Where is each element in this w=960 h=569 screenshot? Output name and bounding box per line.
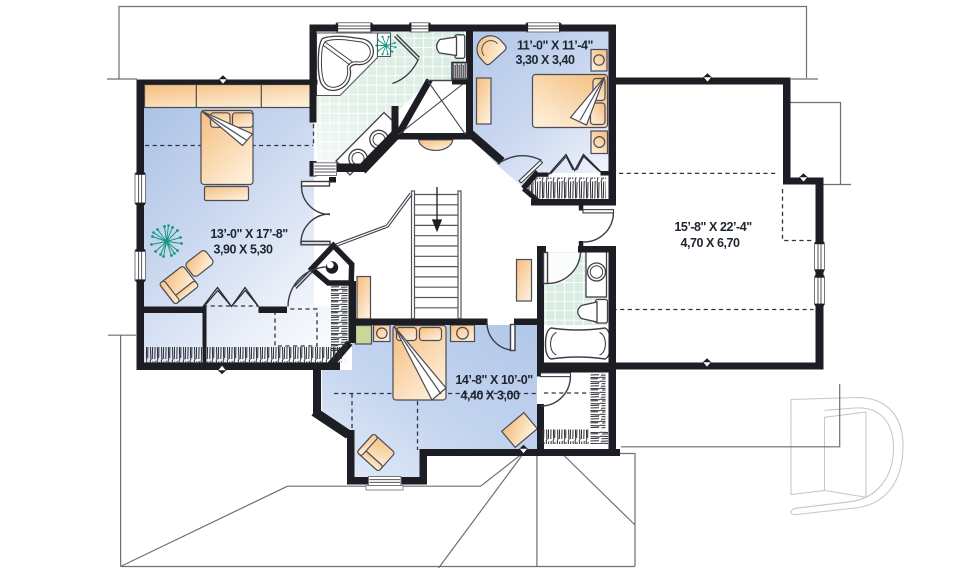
svg-text:3,30 X 3,40: 3,30 X 3,40	[516, 53, 575, 67]
svg-text:13’-0" X 17’-8": 13’-0" X 17’-8"	[210, 227, 288, 241]
svg-text:14’-8" X 10’-0": 14’-8" X 10’-0"	[455, 373, 533, 387]
svg-text:15’-8" X 22’-4": 15’-8" X 22’-4"	[674, 220, 752, 234]
svg-text:4,40 X 3,00: 4,40 X 3,00	[461, 389, 520, 403]
svg-text:3,90 X 5,30: 3,90 X 5,30	[214, 243, 273, 257]
svg-text:4,70 X 6,70: 4,70 X 6,70	[681, 236, 740, 250]
svg-text:11’-0" X 11’-4": 11’-0" X 11’-4"	[517, 39, 594, 53]
